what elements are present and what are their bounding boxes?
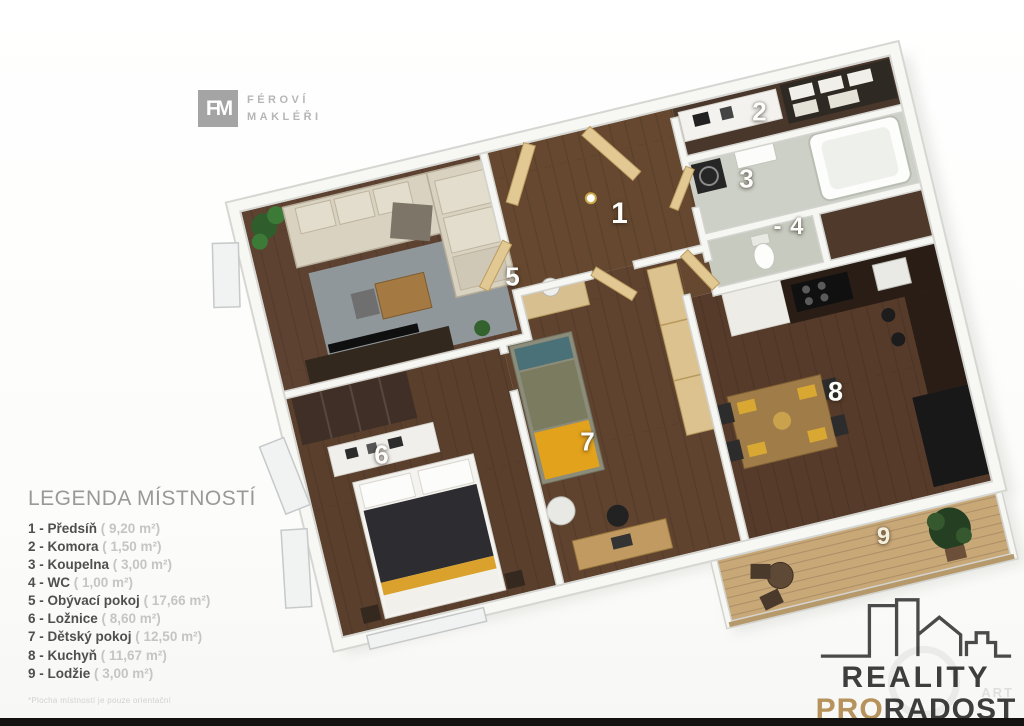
fm-logo-text: FÉROVÍ MAKLÉŘI [247, 92, 322, 125]
fm-logo-icon: FM [198, 90, 238, 127]
legend-item-8: 8 - Kuchyň ( 11,67 m²) [28, 649, 256, 664]
legend-item-label: 8 - Kuchyň [28, 648, 97, 663]
throw-blanket [390, 202, 433, 241]
room-legend: LEGENDA MÍSTNOSTÍ 1 - Předsíň ( 9,20 m²)… [28, 487, 256, 705]
room-label-4: - 4 [773, 213, 804, 241]
legend-item-4: 4 - WC ( 1,00 m²) [28, 576, 256, 591]
legend-item-label: 5 - Obývací pokoj [28, 593, 140, 608]
legend-item-area: ( 12,50 m²) [135, 629, 202, 644]
room-label-5: 5 [505, 262, 520, 293]
legend-item-label: 3 - Koupelna [28, 557, 109, 572]
legend-item-label: 1 - Předsíň [28, 521, 97, 536]
legend-item-7: 7 - Dětský pokoj ( 12,50 m²) [28, 630, 256, 645]
legend-item-label: 4 - WC [28, 575, 70, 590]
legend-item-5: 5 - Obývací pokoj ( 17,66 m²) [28, 594, 256, 609]
window-casement [212, 243, 240, 308]
legend-item-label: 9 - Lodžie [28, 666, 90, 681]
legend-item-area: ( 17,66 m²) [144, 593, 211, 608]
legend-item-label: 7 - Dětský pokoj [28, 629, 132, 644]
watermark-text: ART [981, 685, 1014, 700]
room-label-2: 2 [752, 97, 767, 128]
legend-item-area: ( 8,60 m²) [102, 611, 161, 626]
fm-logo-line2: MAKLÉŘI [247, 109, 322, 126]
reality-proradost-logo: ART REALITY PRORADOST [810, 594, 1022, 726]
window-casement [281, 529, 312, 608]
ferovi-makleri-logo: FM FÉROVÍ MAKLÉŘI [198, 90, 322, 127]
watermark-circle [888, 646, 960, 718]
room-label-7: 7 [580, 427, 595, 458]
legend-item-6: 6 - Ložnice ( 8,60 m²) [28, 612, 256, 627]
legend-item-label: 2 - Komora [28, 539, 99, 554]
ceiling-lamp [585, 192, 597, 204]
room-label-9: 9 [877, 523, 891, 551]
room-label-3: 3 [739, 164, 754, 195]
legend-item-1: 1 - Předsíň ( 9,20 m²) [28, 522, 256, 537]
legend-item-area: ( 9,20 m²) [101, 521, 160, 536]
legend-item-area: ( 1,50 m²) [102, 539, 161, 554]
bottom-black-strip [0, 718, 1024, 726]
legend-title: LEGENDA MÍSTNOSTÍ [28, 487, 256, 511]
legend-item-area: ( 3,00 m²) [113, 557, 172, 572]
legend-footnote: *Plocha místností je pouze orientační [28, 696, 256, 705]
legend-item-3: 3 - Koupelna ( 3,00 m²) [28, 558, 256, 573]
room-label-1: 1 [611, 197, 629, 231]
flyer-canvas: 1 2 3 - 4 5 6 7 8 9 FM FÉROVÍ MAKLÉŘI LE… [0, 0, 1024, 726]
legend-item-2: 2 - Komora ( 1,50 m²) [28, 540, 256, 555]
legend-item-area: ( 1,00 m²) [74, 575, 133, 590]
legend-item-9: 9 - Lodžie ( 3,00 m²) [28, 667, 256, 682]
bistro-chair [750, 564, 770, 579]
fm-logo-line1: FÉROVÍ [247, 92, 322, 109]
legend-item-label: 6 - Ložnice [28, 611, 98, 626]
room-label-8: 8 [828, 377, 844, 408]
legend-item-area: ( 11,67 m²) [101, 648, 167, 663]
legend-item-area: ( 3,00 m²) [94, 666, 153, 681]
room-label-6: 6 [374, 440, 389, 471]
